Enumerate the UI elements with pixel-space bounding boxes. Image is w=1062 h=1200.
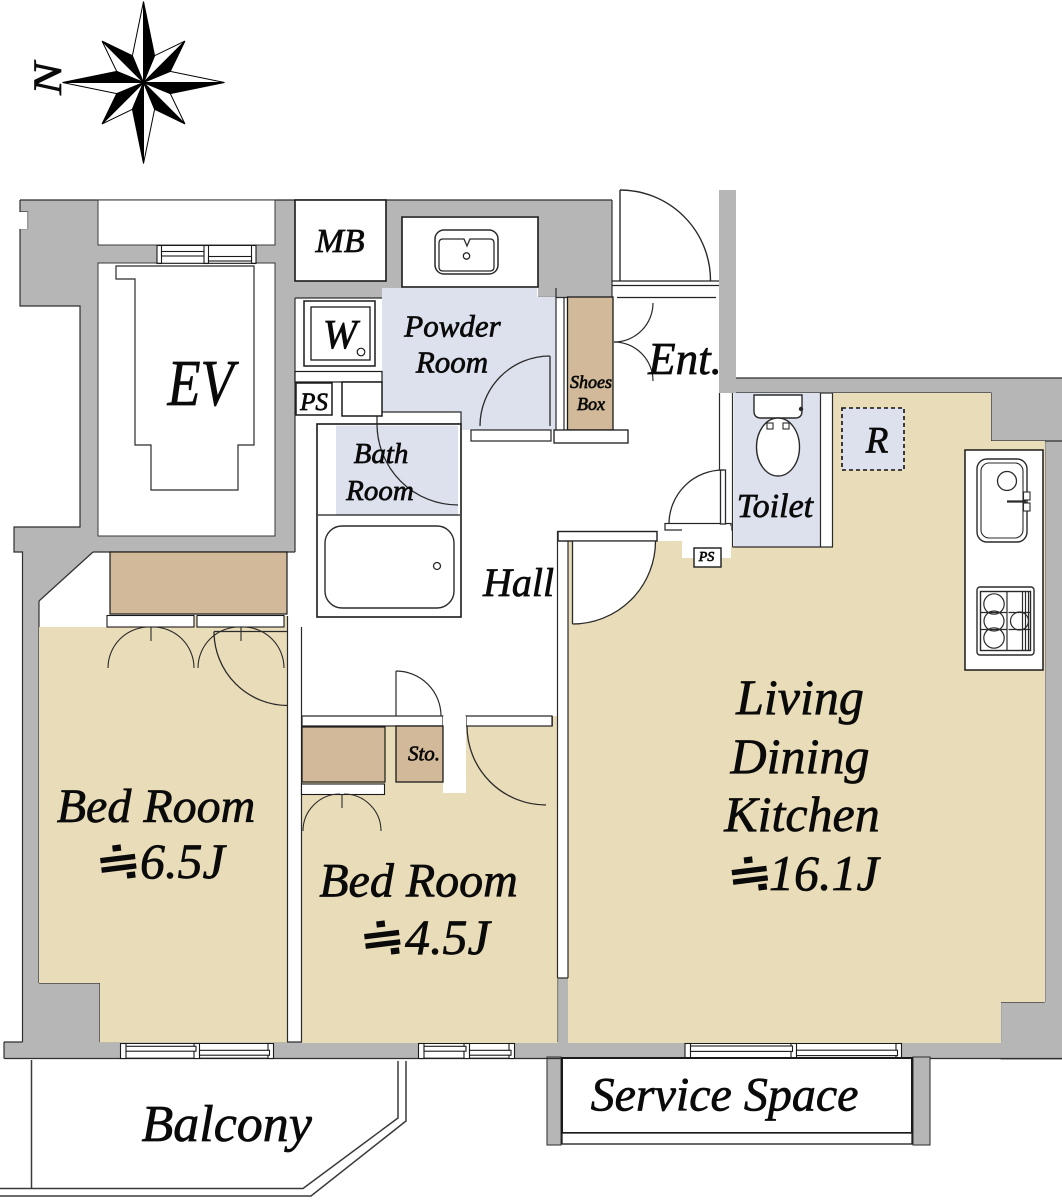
svg-text:PS: PS	[698, 550, 715, 565]
svg-text:MB: MB	[314, 223, 364, 260]
svg-text:Bed Room: Bed Room	[319, 855, 518, 908]
svg-text:PS: PS	[299, 389, 328, 416]
svg-text:Ent.: Ent.	[647, 334, 722, 384]
svg-text:4.5J: 4.5J	[405, 909, 493, 965]
svg-text:Kitchen: Kitchen	[723, 786, 880, 842]
svg-text:Bed Room: Bed Room	[57, 780, 256, 833]
svg-text:Toilet: Toilet	[737, 488, 815, 525]
svg-text:Box: Box	[577, 394, 605, 414]
svg-text:Shoes: Shoes	[570, 372, 612, 392]
svg-text:Bath: Bath	[354, 438, 409, 470]
svg-text:N: N	[25, 59, 70, 96]
svg-text:Dining: Dining	[730, 728, 870, 784]
svg-text:R: R	[865, 421, 889, 462]
svg-text:Hall: Hall	[482, 560, 554, 605]
svg-text:Living: Living	[735, 669, 864, 725]
svg-text:Powder: Powder	[403, 309, 501, 344]
svg-text:Service Space: Service Space	[591, 1069, 859, 1122]
svg-text:Room: Room	[415, 345, 488, 380]
svg-text:16.1J: 16.1J	[769, 845, 882, 901]
svg-text:W: W	[323, 311, 361, 357]
svg-text:Balcony: Balcony	[142, 1096, 313, 1153]
svg-text:Sto.: Sto.	[408, 742, 440, 766]
svg-text:EV: EV	[167, 347, 240, 420]
svg-text:Room: Room	[345, 475, 414, 507]
svg-text:6.5J: 6.5J	[140, 833, 228, 889]
